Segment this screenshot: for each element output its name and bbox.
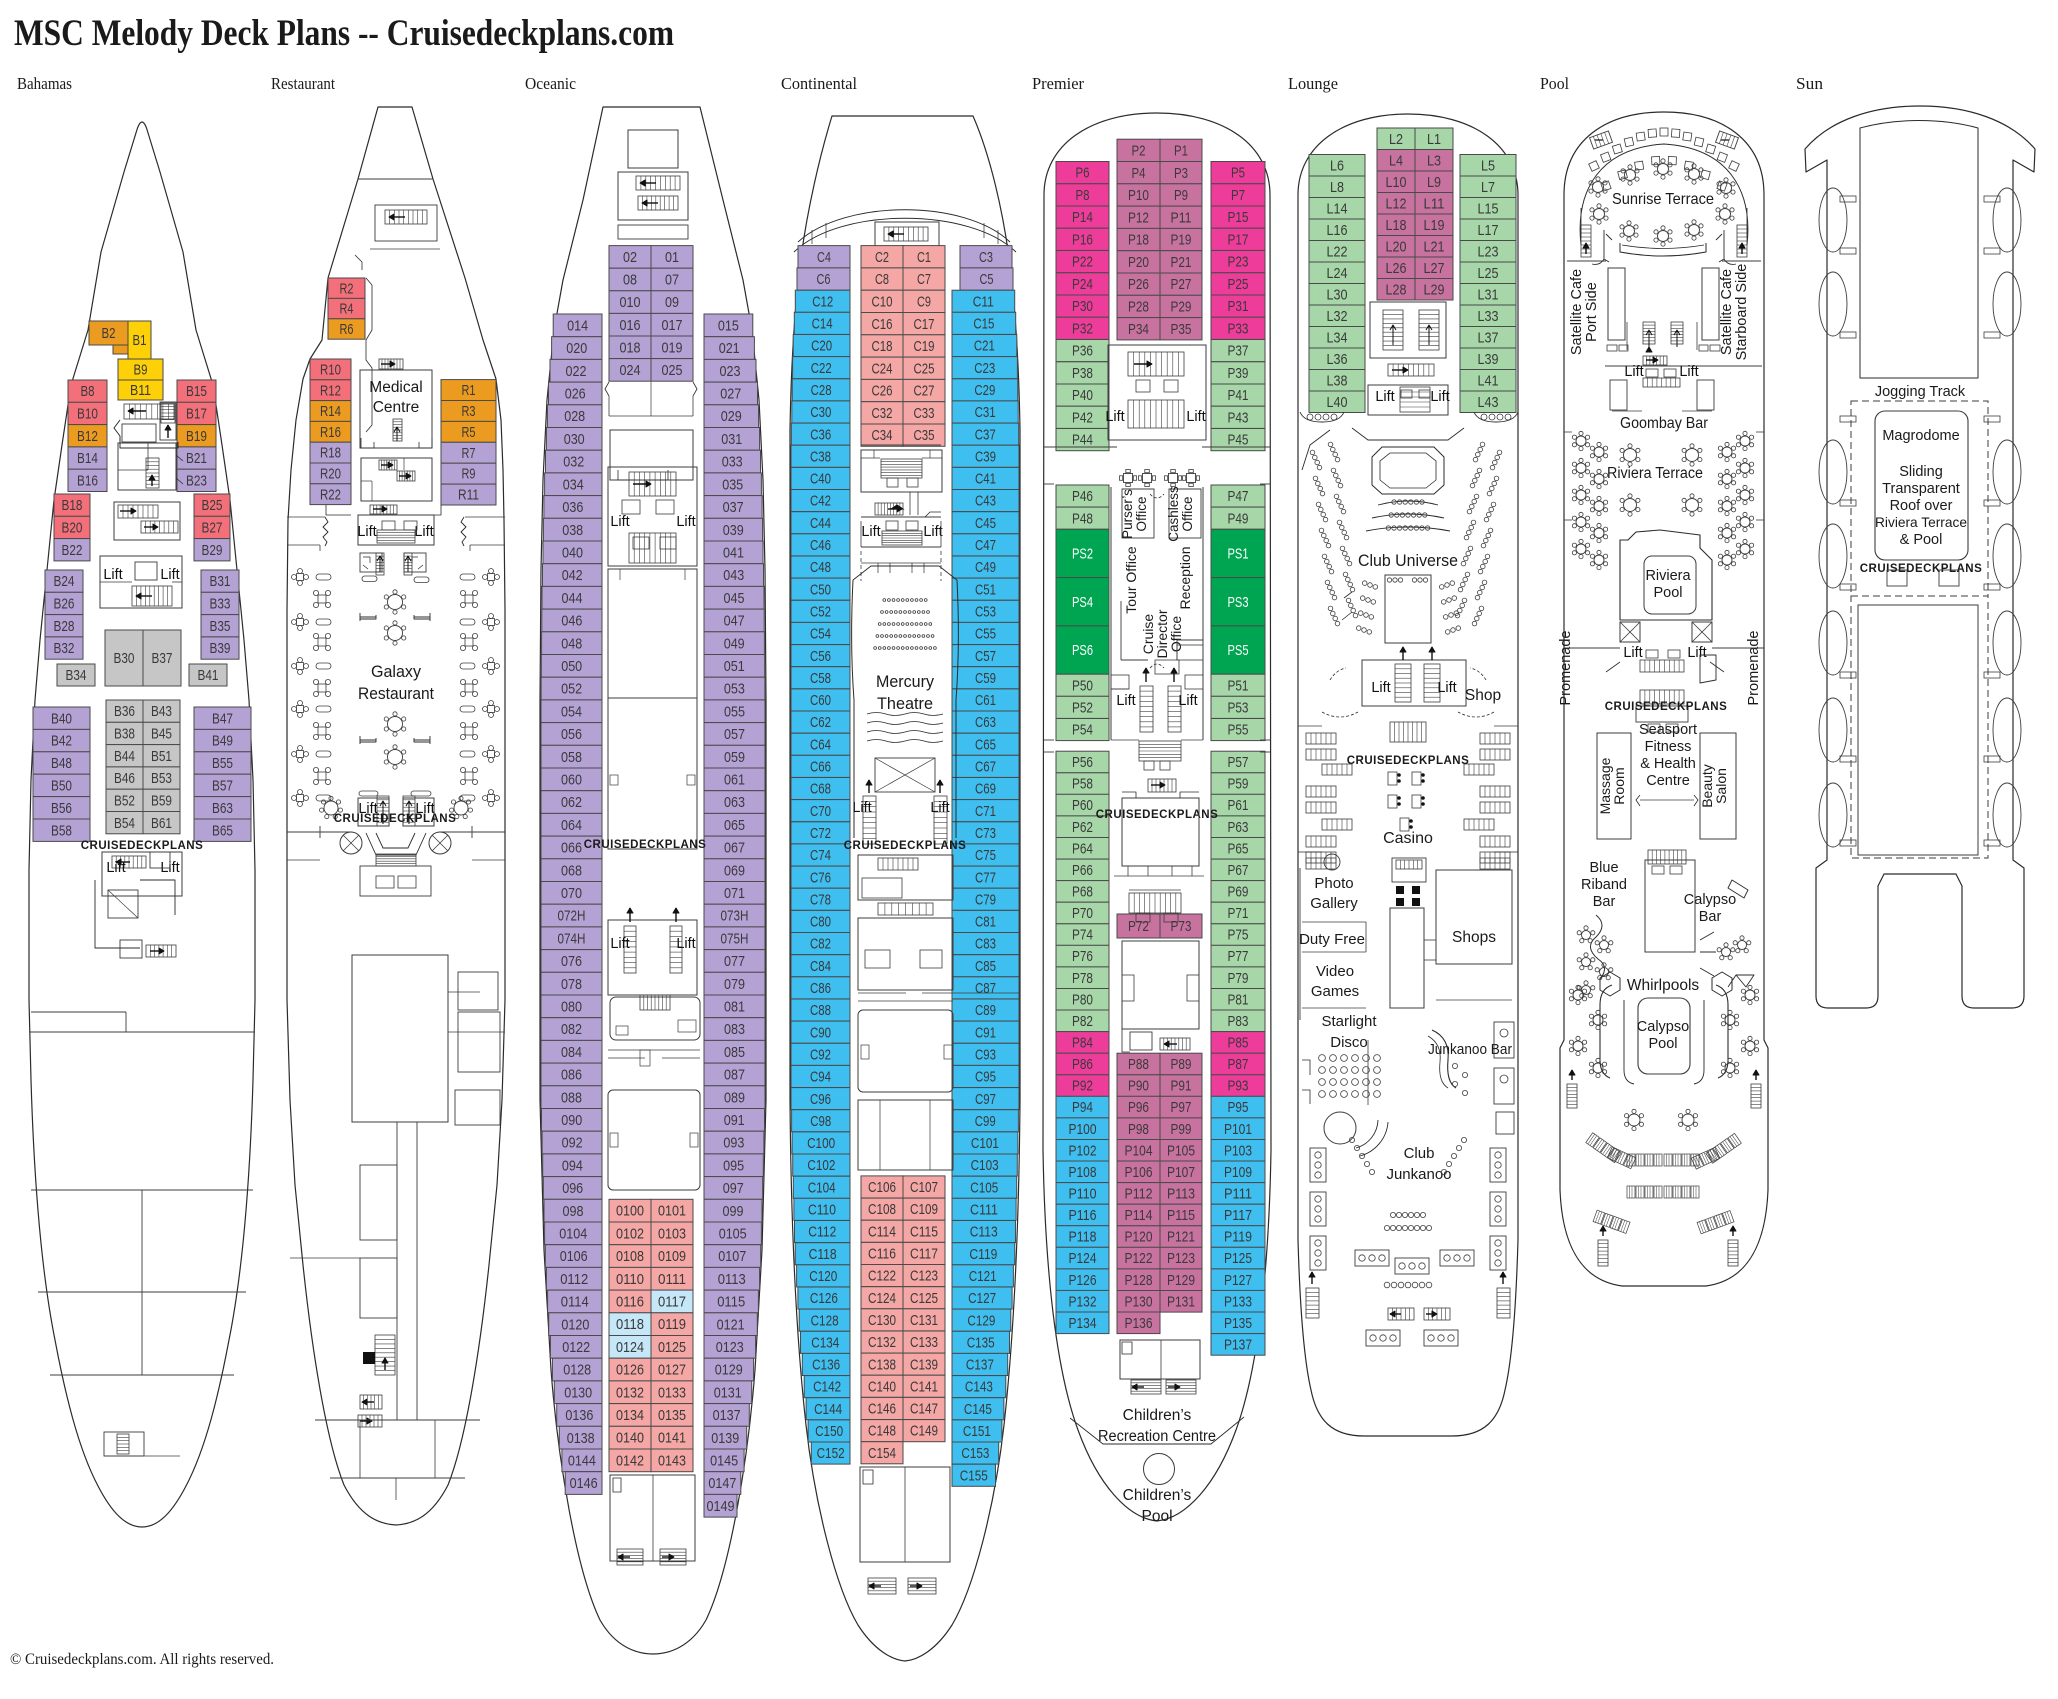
svg-text:047: 047 <box>724 613 745 630</box>
svg-text:B27: B27 <box>202 520 223 537</box>
svg-text:Office: Office <box>1168 616 1184 653</box>
svg-text:R12: R12 <box>320 382 341 399</box>
svg-text:Cashless: Cashless <box>1166 486 1181 542</box>
svg-text:Satellite Cafe: Satellite Cafe <box>1719 269 1735 355</box>
svg-text:C59: C59 <box>975 670 996 687</box>
svg-text:P126: P126 <box>1069 1272 1097 1289</box>
svg-text:085: 085 <box>724 1044 745 1061</box>
svg-text:P105: P105 <box>1167 1142 1195 1159</box>
svg-text:CRUISEDECKPLANS: CRUISEDECKPLANS <box>334 813 457 825</box>
svg-text:08: 08 <box>623 272 637 289</box>
svg-text:B63: B63 <box>212 800 233 817</box>
svg-text:C15: C15 <box>973 316 994 333</box>
svg-text:P88: P88 <box>1128 1056 1149 1073</box>
svg-text:P75: P75 <box>1228 927 1249 944</box>
svg-text:0141: 0141 <box>658 1430 686 1447</box>
svg-text:R18: R18 <box>320 445 341 462</box>
svg-text:PS5: PS5 <box>1228 642 1249 659</box>
svg-text:C65: C65 <box>975 736 996 753</box>
svg-text:P112: P112 <box>1125 1186 1153 1203</box>
svg-text:Office: Office <box>1134 496 1149 531</box>
svg-text:031: 031 <box>721 431 742 448</box>
svg-text:P10: P10 <box>1128 187 1149 204</box>
svg-text:B38: B38 <box>114 726 135 743</box>
svg-text:0120: 0120 <box>561 1316 589 1333</box>
svg-text:C131: C131 <box>910 1312 938 1329</box>
svg-text:0121: 0121 <box>717 1316 745 1333</box>
svg-text:C127: C127 <box>968 1290 996 1307</box>
svg-text:C109: C109 <box>910 1201 938 1218</box>
svg-text:Transparent: Transparent <box>1882 481 1960 497</box>
svg-text:Roof over: Roof over <box>1890 498 1953 514</box>
svg-text:P67: P67 <box>1228 862 1249 879</box>
svg-text:P80: P80 <box>1072 991 1093 1008</box>
svg-text:065: 065 <box>724 817 745 834</box>
svg-text:034: 034 <box>563 476 584 493</box>
svg-text:C20: C20 <box>811 338 832 355</box>
svg-text:C125: C125 <box>910 1290 938 1307</box>
svg-text:P9: P9 <box>1174 187 1188 204</box>
svg-text:Office: Office <box>1180 496 1195 531</box>
svg-text:C93: C93 <box>975 1047 996 1064</box>
svg-text:L39: L39 <box>1478 351 1499 368</box>
svg-text:C108: C108 <box>868 1201 896 1218</box>
svg-text:B10: B10 <box>77 406 98 423</box>
svg-text:C82: C82 <box>810 936 831 953</box>
svg-text:P108: P108 <box>1069 1164 1097 1181</box>
svg-text:Pool: Pool <box>1648 1036 1677 1052</box>
svg-text:P30: P30 <box>1072 298 1093 315</box>
svg-text:P8: P8 <box>1076 187 1090 204</box>
svg-text:L29: L29 <box>1424 281 1445 298</box>
svg-text:C12: C12 <box>812 293 833 310</box>
svg-text:P84: P84 <box>1072 1035 1093 1052</box>
svg-text:Lift: Lift <box>1624 364 1643 380</box>
svg-text:P95: P95 <box>1228 1099 1249 1116</box>
svg-text:P22: P22 <box>1072 254 1093 271</box>
svg-text:Calypso: Calypso <box>1637 1019 1689 1035</box>
svg-text:P123: P123 <box>1167 1250 1195 1267</box>
svg-text:P38: P38 <box>1072 365 1093 382</box>
svg-text:0115: 0115 <box>717 1294 745 1311</box>
svg-text:C26: C26 <box>872 383 893 400</box>
svg-text:P120: P120 <box>1125 1229 1153 1246</box>
svg-text:061: 061 <box>724 772 745 789</box>
svg-text:P18: P18 <box>1128 232 1149 249</box>
svg-text:B1: B1 <box>133 332 147 349</box>
svg-text:R11: R11 <box>458 487 479 504</box>
svg-text:C36: C36 <box>810 426 831 443</box>
svg-text:B31: B31 <box>210 573 231 590</box>
svg-text:B17: B17 <box>186 406 207 423</box>
svg-text:C112: C112 <box>808 1224 836 1241</box>
svg-text:0126: 0126 <box>616 1362 644 1379</box>
svg-text:R3: R3 <box>462 403 476 420</box>
svg-text:C16: C16 <box>872 316 893 333</box>
svg-text:P72: P72 <box>1128 918 1149 935</box>
svg-text:P129: P129 <box>1167 1272 1195 1289</box>
svg-text:C24: C24 <box>872 360 893 377</box>
svg-text:P86: P86 <box>1072 1056 1093 1073</box>
svg-text:C121: C121 <box>969 1268 997 1285</box>
svg-text:029: 029 <box>721 408 742 425</box>
svg-text:P62: P62 <box>1072 819 1093 836</box>
svg-text:018: 018 <box>620 339 641 356</box>
svg-text:C110: C110 <box>808 1202 836 1219</box>
svg-text:P46: P46 <box>1072 488 1093 505</box>
svg-text:Lift: Lift <box>1437 680 1456 696</box>
svg-text:P68: P68 <box>1072 884 1093 901</box>
svg-text:L43: L43 <box>1478 394 1499 411</box>
svg-text:C5: C5 <box>980 271 994 288</box>
svg-text:058: 058 <box>561 749 582 766</box>
svg-text:0101: 0101 <box>658 1203 686 1220</box>
svg-text:Lift: Lift <box>106 860 125 876</box>
svg-text:P124: P124 <box>1069 1250 1097 1267</box>
svg-text:C60: C60 <box>810 692 831 709</box>
svg-text:P132: P132 <box>1069 1293 1097 1310</box>
svg-text:P48: P48 <box>1072 510 1093 527</box>
svg-text:B50: B50 <box>51 778 72 795</box>
svg-text:P24: P24 <box>1072 276 1093 293</box>
svg-text:C138: C138 <box>868 1356 896 1373</box>
svg-text:Pool: Pool <box>1540 74 1569 93</box>
svg-text:C91: C91 <box>975 1024 996 1041</box>
svg-text:C32: C32 <box>872 405 893 422</box>
svg-text:C44: C44 <box>810 515 831 532</box>
svg-text:Oceanic: Oceanic <box>525 74 576 93</box>
svg-text:C27: C27 <box>914 383 935 400</box>
svg-text:P17: P17 <box>1228 232 1249 249</box>
svg-text:Casino: Casino <box>1383 830 1433 847</box>
svg-text:C148: C148 <box>868 1423 896 1440</box>
svg-text:B25: B25 <box>202 497 223 514</box>
svg-text:Riviera: Riviera <box>1645 568 1691 584</box>
svg-text:C14: C14 <box>812 316 833 333</box>
svg-text:0144: 0144 <box>568 1453 596 1470</box>
svg-text:P103: P103 <box>1224 1142 1252 1159</box>
svg-text:043: 043 <box>723 567 744 584</box>
svg-text:B22: B22 <box>62 542 83 559</box>
svg-text:B9: B9 <box>134 362 148 379</box>
svg-text:P106: P106 <box>1125 1164 1153 1181</box>
svg-text:C111: C111 <box>970 1202 998 1219</box>
svg-text:069: 069 <box>724 862 745 879</box>
svg-text:022: 022 <box>566 363 587 380</box>
svg-text:C69: C69 <box>975 781 996 798</box>
svg-text:L14: L14 <box>1327 200 1348 217</box>
svg-text:049: 049 <box>724 635 745 652</box>
svg-text:P27: P27 <box>1171 276 1192 293</box>
svg-text:Bar: Bar <box>1699 909 1722 925</box>
svg-text:C97: C97 <box>975 1091 996 1108</box>
svg-text:C74: C74 <box>810 847 831 864</box>
svg-text:039: 039 <box>723 522 744 539</box>
svg-text:C123: C123 <box>910 1268 938 1285</box>
svg-text:B61: B61 <box>151 815 172 832</box>
svg-text:L2: L2 <box>1389 131 1403 148</box>
svg-text:P135: P135 <box>1224 1315 1252 1332</box>
svg-text:070: 070 <box>561 885 582 902</box>
svg-text:Purser’s: Purser’s <box>1120 489 1135 539</box>
svg-text:C149: C149 <box>910 1423 938 1440</box>
svg-text:P117: P117 <box>1224 1207 1252 1224</box>
svg-text:CRUISEDECKPLANS: CRUISEDECKPLANS <box>1605 701 1728 713</box>
svg-text:P85: P85 <box>1228 1035 1249 1052</box>
svg-text:L23: L23 <box>1478 243 1499 260</box>
svg-text:C102: C102 <box>807 1157 835 1174</box>
svg-text:0117: 0117 <box>658 1294 686 1311</box>
svg-text:P55: P55 <box>1228 722 1249 739</box>
svg-text:Riband: Riband <box>1581 877 1627 893</box>
svg-text:P44: P44 <box>1072 432 1093 449</box>
svg-text:P26: P26 <box>1128 276 1149 293</box>
svg-text:B56: B56 <box>51 800 72 817</box>
svg-text:R14: R14 <box>320 403 341 420</box>
svg-text:C155: C155 <box>960 1467 988 1484</box>
svg-text:09: 09 <box>665 294 679 311</box>
svg-text:C57: C57 <box>975 648 996 665</box>
svg-text:R4: R4 <box>340 301 354 318</box>
svg-text:C154: C154 <box>868 1445 896 1462</box>
svg-text:B36: B36 <box>114 703 135 720</box>
svg-text:P40: P40 <box>1072 387 1093 404</box>
svg-text:C54: C54 <box>810 626 831 643</box>
svg-text:Continental: Continental <box>781 74 857 93</box>
svg-text:L31: L31 <box>1478 286 1499 303</box>
svg-text:Lift: Lift <box>610 514 629 530</box>
svg-text:075H: 075H <box>721 930 749 947</box>
svg-text:P4: P4 <box>1132 165 1146 182</box>
svg-text:C43: C43 <box>975 493 996 510</box>
svg-text:P3: P3 <box>1174 165 1188 182</box>
svg-text:010: 010 <box>620 294 641 311</box>
svg-text:C114: C114 <box>868 1223 896 1240</box>
svg-text:C52: C52 <box>810 604 831 621</box>
svg-text:P21: P21 <box>1171 254 1192 271</box>
svg-text:Pool: Pool <box>1653 585 1682 601</box>
svg-text:P73: P73 <box>1171 918 1192 935</box>
svg-text:P63: P63 <box>1228 819 1249 836</box>
svg-text:P100: P100 <box>1069 1121 1097 1138</box>
svg-text:B43: B43 <box>151 703 172 720</box>
svg-text:Lift: Lift <box>1430 389 1449 405</box>
svg-text:P79: P79 <box>1228 970 1249 987</box>
svg-text:077: 077 <box>724 953 745 970</box>
svg-text:0143: 0143 <box>658 1452 686 1469</box>
svg-text:& Pool: & Pool <box>1900 532 1943 548</box>
svg-text:027: 027 <box>720 386 741 403</box>
svg-text:P53: P53 <box>1228 700 1249 717</box>
svg-text:P37: P37 <box>1228 343 1249 360</box>
svg-text:& Health: & Health <box>1640 756 1696 772</box>
svg-text:Lift: Lift <box>610 936 629 952</box>
svg-text:P78: P78 <box>1072 970 1093 987</box>
svg-text:B12: B12 <box>77 428 98 445</box>
svg-text:071: 071 <box>724 885 745 902</box>
svg-text:C94: C94 <box>810 1069 831 1086</box>
svg-text:C29: C29 <box>974 382 995 399</box>
svg-text:Lift: Lift <box>1687 645 1706 661</box>
svg-text:R9: R9 <box>462 466 476 483</box>
svg-text:B58: B58 <box>51 822 72 839</box>
svg-text:0130: 0130 <box>564 1384 592 1401</box>
svg-text:053: 053 <box>724 681 745 698</box>
svg-text:C153: C153 <box>961 1445 989 1462</box>
svg-text:C2: C2 <box>875 249 889 266</box>
svg-text:L19: L19 <box>1424 217 1445 234</box>
svg-text:0145: 0145 <box>710 1453 738 1470</box>
svg-text:C152: C152 <box>817 1445 845 1462</box>
svg-text:Bar: Bar <box>1593 894 1616 910</box>
svg-text:P32: P32 <box>1072 321 1093 338</box>
svg-text:C126: C126 <box>810 1290 838 1307</box>
svg-text:C21: C21 <box>974 338 995 355</box>
svg-text:0136: 0136 <box>565 1407 593 1424</box>
svg-text:0129: 0129 <box>715 1362 743 1379</box>
svg-text:0100: 0100 <box>616 1203 644 1220</box>
svg-text:C35: C35 <box>914 427 935 444</box>
svg-text:Satellite Cafe: Satellite Cafe <box>1569 269 1585 355</box>
svg-text:L27: L27 <box>1424 260 1445 277</box>
svg-text:R22: R22 <box>320 486 341 503</box>
svg-text:Lift: Lift <box>103 567 122 583</box>
svg-text:084: 084 <box>561 1044 582 1061</box>
svg-text:P113: P113 <box>1167 1186 1195 1203</box>
svg-text:Lift: Lift <box>1375 389 1394 405</box>
svg-text:P127: P127 <box>1224 1272 1252 1289</box>
svg-text:023: 023 <box>720 363 741 380</box>
svg-text:C1: C1 <box>917 249 931 266</box>
svg-text:P77: P77 <box>1228 948 1249 965</box>
svg-text:Reception: Reception <box>1177 546 1193 609</box>
svg-text:B35: B35 <box>210 618 231 635</box>
svg-text:B8: B8 <box>81 383 95 400</box>
svg-text:0124: 0124 <box>616 1339 644 1356</box>
svg-text:Games: Games <box>1311 983 1359 1000</box>
svg-text:B29: B29 <box>202 542 223 559</box>
svg-text:C77: C77 <box>975 869 996 886</box>
svg-text:L9: L9 <box>1427 174 1441 191</box>
svg-text:B28: B28 <box>54 618 75 635</box>
svg-text:0138: 0138 <box>567 1430 595 1447</box>
svg-text:052: 052 <box>561 681 582 698</box>
svg-text:Starlight: Starlight <box>1321 1013 1377 1030</box>
svg-text:L5: L5 <box>1481 157 1495 174</box>
svg-text:0149: 0149 <box>707 1498 735 1515</box>
svg-text:Magrodome: Magrodome <box>1882 428 1959 444</box>
svg-text:P130: P130 <box>1125 1293 1153 1310</box>
svg-text:C4: C4 <box>817 249 831 266</box>
svg-text:B37: B37 <box>152 650 173 667</box>
svg-text:Junkanoo Bar: Junkanoo Bar <box>1428 1041 1512 1058</box>
svg-text:055: 055 <box>724 703 745 720</box>
svg-text:P43: P43 <box>1228 410 1249 427</box>
svg-text:C84: C84 <box>810 958 831 975</box>
svg-text:Club: Club <box>1404 1145 1435 1162</box>
svg-text:R7: R7 <box>462 445 476 462</box>
svg-text:P99: P99 <box>1171 1121 1192 1138</box>
svg-text:C34: C34 <box>872 427 893 444</box>
svg-text:C75: C75 <box>975 847 996 864</box>
svg-text:C144: C144 <box>814 1401 842 1418</box>
svg-text:C143: C143 <box>965 1379 993 1396</box>
svg-text:Salon: Salon <box>1713 768 1729 804</box>
svg-text:0114: 0114 <box>561 1294 589 1311</box>
svg-text:B48: B48 <box>51 755 72 772</box>
svg-text:024: 024 <box>620 362 641 379</box>
svg-text:Lift: Lift <box>852 800 871 816</box>
svg-text:B53: B53 <box>151 770 172 787</box>
svg-text:L11: L11 <box>1424 195 1445 212</box>
svg-text:056: 056 <box>561 726 582 743</box>
svg-text:C70: C70 <box>810 803 831 820</box>
svg-text:Goombay Bar: Goombay Bar <box>1620 415 1709 432</box>
svg-text:L22: L22 <box>1327 243 1348 260</box>
svg-text:Medical: Medical <box>369 379 422 396</box>
svg-text:C101: C101 <box>971 1135 999 1152</box>
svg-text:01: 01 <box>665 249 679 266</box>
svg-text:L24: L24 <box>1327 265 1348 282</box>
svg-text:066: 066 <box>561 840 582 857</box>
svg-text:C83: C83 <box>975 936 996 953</box>
svg-text:C137: C137 <box>966 1357 994 1374</box>
svg-text:C122: C122 <box>868 1268 896 1285</box>
svg-text:L17: L17 <box>1478 222 1499 239</box>
svg-text:087: 087 <box>724 1067 745 1084</box>
svg-text:0133: 0133 <box>658 1384 686 1401</box>
svg-text:Lift: Lift <box>1105 409 1124 425</box>
svg-text:B42: B42 <box>51 733 72 750</box>
svg-text:Premier: Premier <box>1032 74 1084 93</box>
svg-text:B16: B16 <box>77 473 98 490</box>
svg-text:B33: B33 <box>210 596 231 613</box>
svg-text:P66: P66 <box>1072 862 1093 879</box>
svg-text:Disco: Disco <box>1330 1034 1368 1051</box>
svg-text:B2: B2 <box>102 325 116 342</box>
svg-text:042: 042 <box>562 567 583 584</box>
svg-text:Lift: Lift <box>1116 693 1135 709</box>
svg-text:P114: P114 <box>1125 1207 1153 1224</box>
svg-text:044: 044 <box>562 590 583 607</box>
svg-text:096: 096 <box>562 1180 583 1197</box>
svg-text:Lift: Lift <box>357 524 376 540</box>
svg-text:B23: B23 <box>186 473 207 490</box>
svg-text:C39: C39 <box>975 448 996 465</box>
svg-text:C120: C120 <box>809 1268 837 1285</box>
svg-text:P91: P91 <box>1171 1078 1192 1095</box>
svg-text:Bahamas: Bahamas <box>17 74 72 93</box>
svg-text:L16: L16 <box>1327 222 1348 239</box>
svg-text:0105: 0105 <box>719 1226 747 1243</box>
svg-text:C9: C9 <box>917 293 931 310</box>
svg-text:P57: P57 <box>1228 754 1249 771</box>
svg-text:P116: P116 <box>1069 1207 1097 1224</box>
svg-text:Mercury: Mercury <box>876 673 935 691</box>
svg-text:C150: C150 <box>815 1423 843 1440</box>
svg-text:C107: C107 <box>910 1179 938 1196</box>
svg-text:P90: P90 <box>1128 1078 1149 1095</box>
svg-text:© Cruisedeckplans.com. All rig: © Cruisedeckplans.com. All rights reserv… <box>10 1651 274 1668</box>
svg-text:Children’s: Children’s <box>1123 1487 1192 1504</box>
svg-text:PS3: PS3 <box>1228 594 1249 611</box>
svg-text:C142: C142 <box>813 1379 841 1396</box>
svg-text:L33: L33 <box>1478 308 1499 325</box>
svg-text:B49: B49 <box>212 733 233 750</box>
svg-text:R20: R20 <box>320 466 341 483</box>
svg-text:050: 050 <box>561 658 582 675</box>
svg-text:B14: B14 <box>77 450 98 467</box>
